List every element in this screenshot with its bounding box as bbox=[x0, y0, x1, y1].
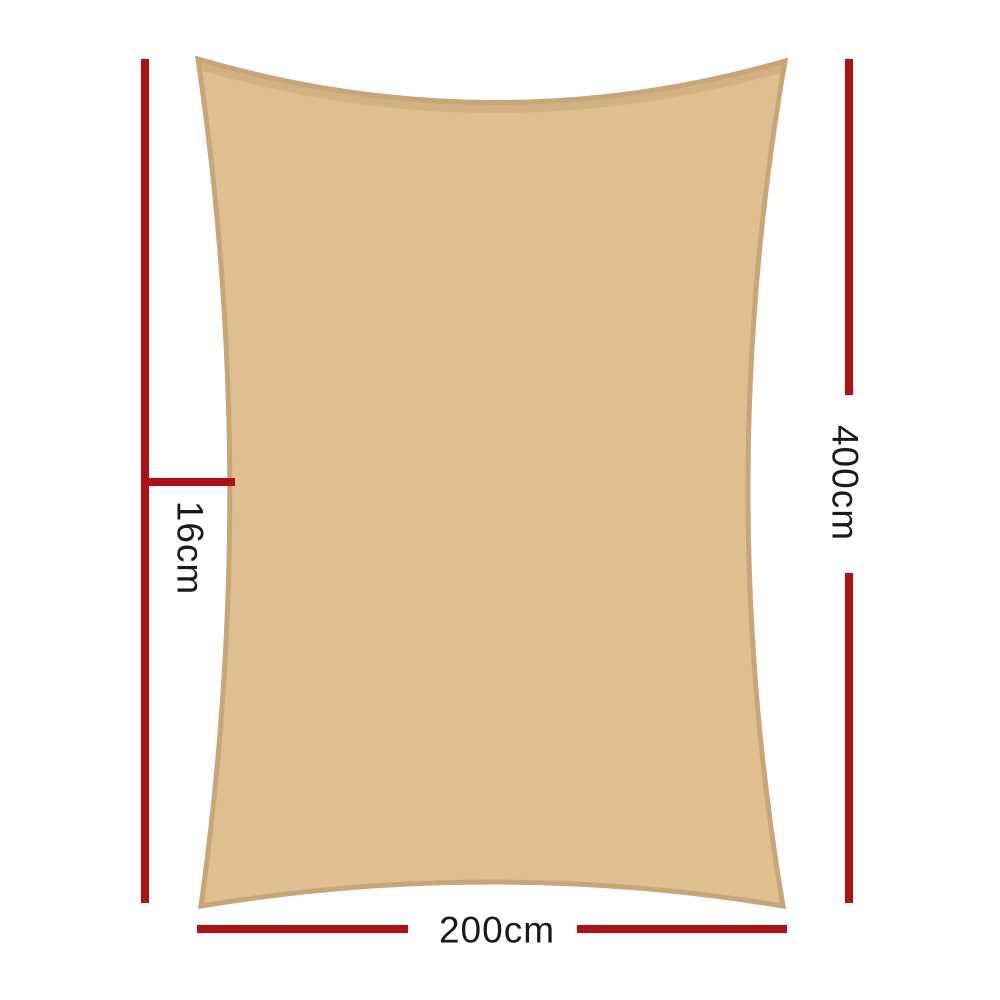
bottom-dimension-line-right bbox=[577, 925, 787, 933]
height-label: 400cm bbox=[827, 425, 864, 541]
shade-sail-dimension-diagram: 16cm 400cm 200cm bbox=[0, 0, 1000, 1000]
right-dimension-line-top bbox=[845, 59, 853, 395]
edge-offset-label: 16cm bbox=[172, 501, 209, 595]
shade-sail-shape bbox=[198, 59, 785, 906]
bottom-dimension-line-left bbox=[197, 925, 408, 933]
right-dimension-line-bottom bbox=[845, 573, 853, 903]
width-label: 200cm bbox=[439, 912, 555, 949]
offset-tick-line bbox=[141, 478, 235, 486]
